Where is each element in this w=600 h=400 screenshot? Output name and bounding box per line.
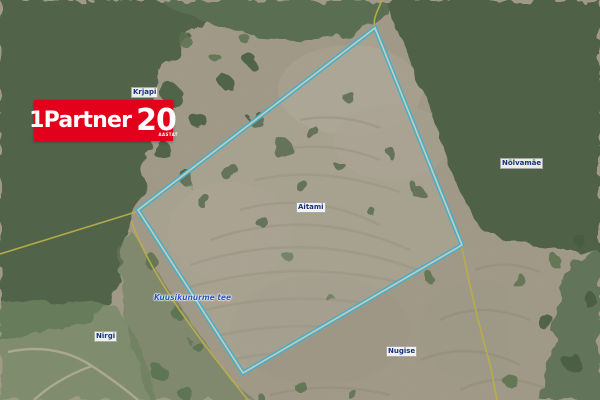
aerial-map xyxy=(0,0,600,400)
logo-anniversary: 20 AASTAT xyxy=(136,106,178,136)
logo-anniversary-subtext: AASTAT xyxy=(159,132,178,137)
partner-logo: 1Partner 20 AASTAT xyxy=(34,100,173,141)
logo-brand-text: 1Partner xyxy=(29,110,131,132)
grain-light xyxy=(0,0,600,400)
map-screenshot: KrjapiAitamiNõlvamäeNirgiNugiseKuusikunu… xyxy=(0,0,600,400)
